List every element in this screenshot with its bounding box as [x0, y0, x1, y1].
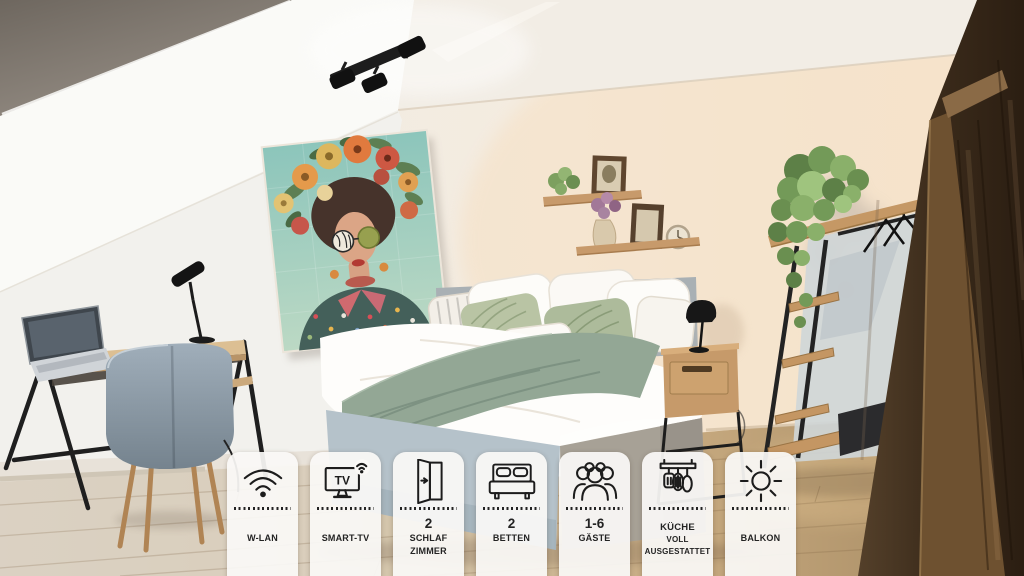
badge-label: BETTEN: [493, 532, 530, 545]
amenity-badge-wlan: W-LAN: [227, 452, 298, 576]
amenity-badge-guests: 1-6 GÄSTE: [559, 452, 630, 576]
amenity-badge-kitchen: KÜCHE VOLL AUSGESTATTET: [642, 452, 713, 576]
sun-icon: [738, 455, 784, 507]
kitchen-utensils-icon: [656, 455, 700, 507]
badge-value: 2: [508, 516, 516, 532]
badge-label: KÜCHE: [660, 522, 695, 534]
double-bed-icon: [487, 455, 537, 507]
badge-label: BALKON: [741, 532, 781, 545]
badge-label: W-LAN: [247, 532, 278, 545]
amenity-badge-smart-tv: TV SMART-TV: [310, 452, 381, 576]
dotted-divider: [732, 507, 789, 510]
dotted-divider: [483, 507, 540, 510]
guests-group-icon: [572, 455, 618, 507]
dotted-divider: [566, 507, 623, 510]
smart-tv-icon: TV: [322, 455, 370, 507]
amenity-badge-beds: 2 BETTEN: [476, 452, 547, 576]
badge-label: GÄSTE: [578, 532, 610, 545]
badge-label: ZIMMER: [410, 545, 447, 558]
amenity-badge-bedrooms: 2 SCHLAF ZIMMER: [393, 452, 464, 576]
wifi-icon: [241, 455, 285, 507]
amenity-badge-balcony: BALKON: [725, 452, 796, 576]
dotted-divider: [649, 507, 706, 510]
tv-icon-label: TV: [334, 474, 349, 488]
badge-label: AUSGESTATTET: [645, 546, 711, 558]
badge-value: 1-6: [585, 516, 605, 532]
badge-label: VOLL: [666, 534, 688, 546]
dotted-divider: [400, 507, 457, 510]
picture-frame: [591, 155, 626, 196]
open-door-icon: [411, 455, 447, 507]
room-photo: W-LAN TV SMART-TV: [0, 0, 1024, 576]
dotted-divider: [317, 507, 374, 510]
amenity-badges-row: W-LAN TV SMART-TV: [227, 452, 796, 576]
desk-chair: [106, 343, 234, 550]
badge-value: 2: [425, 516, 433, 532]
badge-label: SMART-TV: [322, 532, 370, 545]
dotted-divider: [234, 507, 291, 510]
badge-label: SCHLAF: [410, 532, 448, 545]
